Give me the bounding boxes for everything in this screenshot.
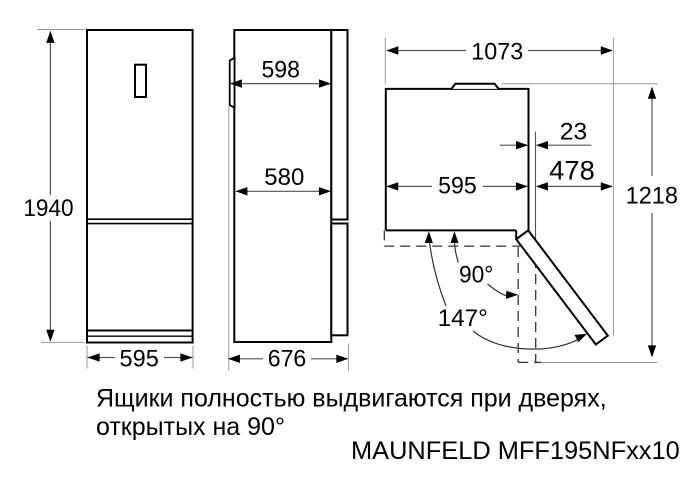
svg-text:478: 478: [549, 156, 595, 186]
svg-text:Ящики полностью выдвигаются пр: Ящики полностью выдвигаются при дверях,: [96, 385, 607, 413]
svg-text:1073: 1073: [471, 38, 523, 65]
svg-text:23: 23: [560, 119, 587, 146]
svg-text:MAUNFELD MFF195NFxx10: MAUNFELD MFF195NFxx10: [351, 437, 680, 465]
svg-text:598: 598: [261, 57, 300, 84]
svg-text:1218: 1218: [626, 183, 678, 210]
svg-text:открытых на 90°: открытых на 90°: [96, 413, 285, 441]
svg-text:147°: 147°: [438, 305, 488, 332]
svg-text:676: 676: [268, 345, 307, 372]
svg-text:595: 595: [120, 345, 159, 372]
svg-text:1940: 1940: [23, 195, 73, 222]
svg-text:595: 595: [438, 173, 477, 200]
svg-text:580: 580: [264, 164, 304, 191]
